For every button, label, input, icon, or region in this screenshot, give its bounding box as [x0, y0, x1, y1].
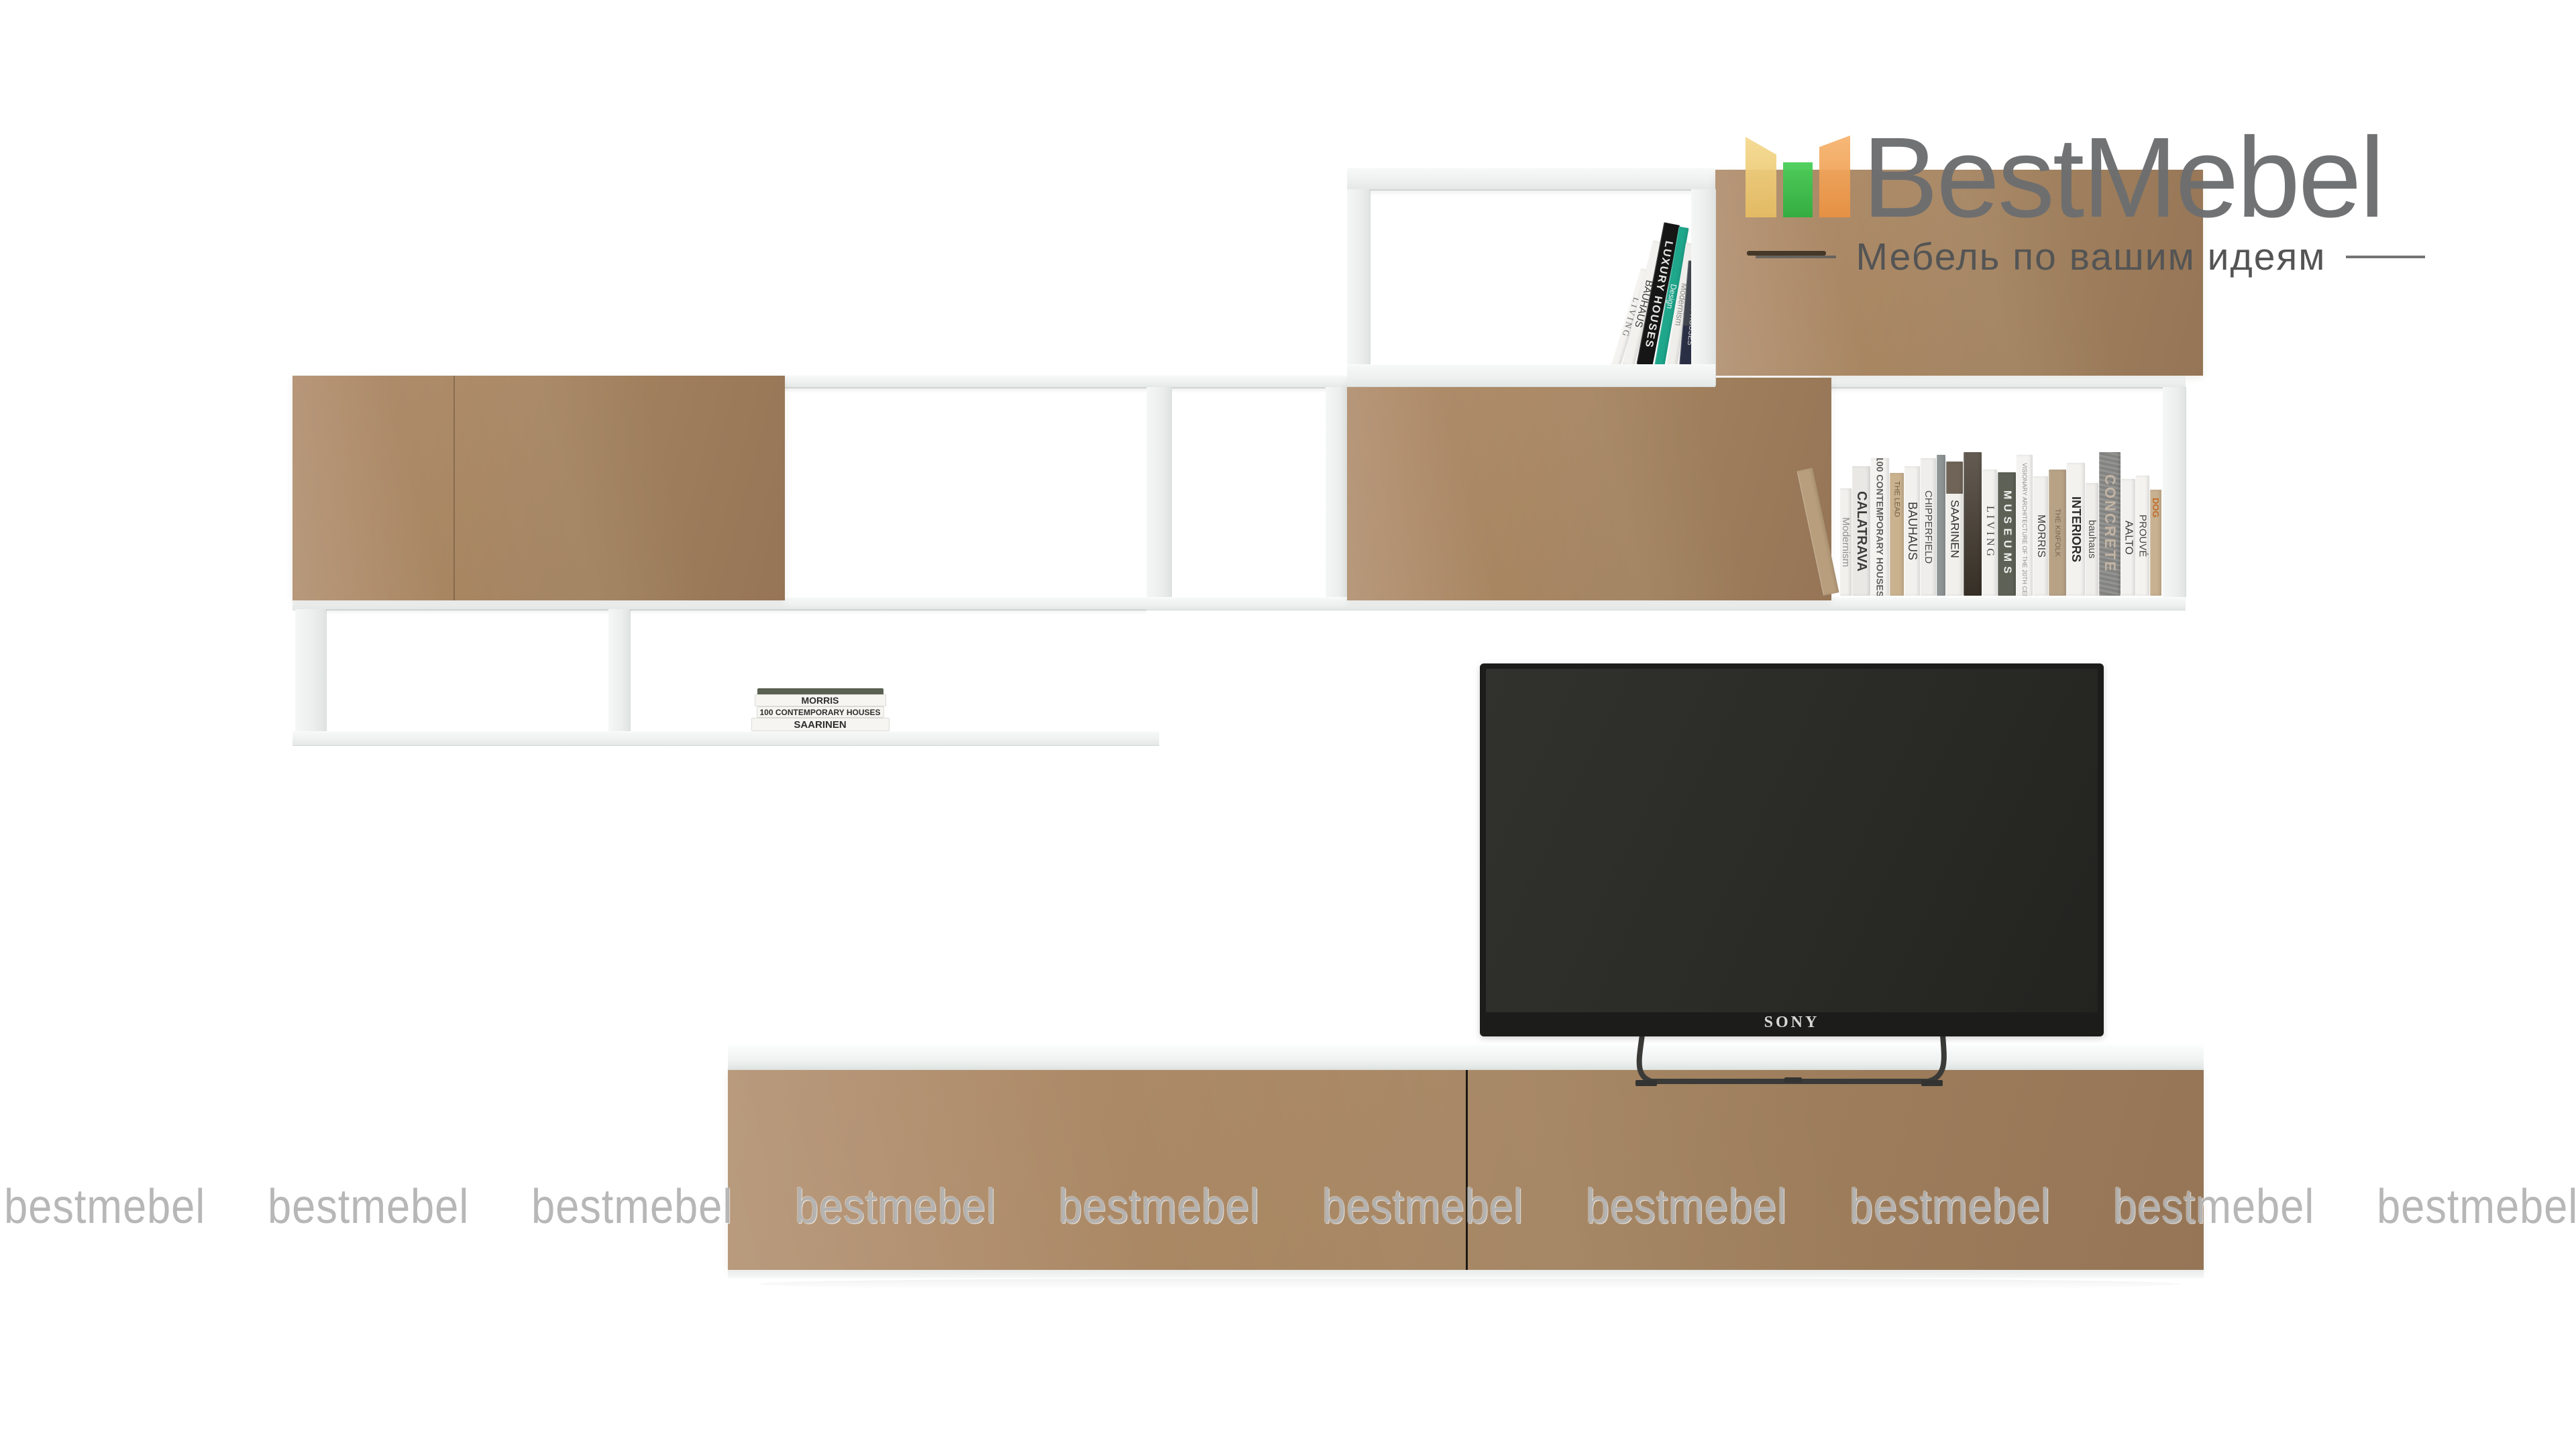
watermark-text: bestmebel: [1586, 1179, 1787, 1234]
book-title: AALTO: [2123, 521, 2135, 555]
tv-stand-bottom-edge: [728, 1270, 2204, 1278]
gloss-sheen: [292, 376, 785, 600]
top-box-right-wall: [1691, 189, 1716, 386]
book-title: THE KINFOLK: [2053, 508, 2061, 557]
tv-stand: [728, 1044, 2204, 1278]
book-title: MORRIS: [2035, 515, 2047, 557]
brand-tagline: Мебель по вашим идеям: [1856, 235, 2326, 279]
tagline-dash-left: [1756, 256, 1836, 258]
center-brown-cabinet: [1347, 378, 1831, 600]
mid-unit-right-wall: [1326, 387, 1349, 597]
book-spine: CONCRETE: [2099, 452, 2121, 596]
middle-shelf-books: ModernismCALATRAVA100 CONTEMPORARY HOUSE…: [1823, 451, 2167, 596]
right-shelf-top-bar: [1819, 375, 2186, 388]
book-spine: DOG: [2150, 490, 2161, 596]
lower-shelf-left-wall: [295, 609, 327, 731]
mid-unit-inner-shadow-1: [785, 387, 1146, 393]
book-title: 100 CONTEMPORARY HOUSES: [759, 708, 880, 717]
stacked-book: 100 CONTEMPORARY HOUSES: [757, 706, 884, 718]
book-title: CONCRETE: [2101, 474, 2118, 573]
top-box-left-wall: [1347, 189, 1371, 386]
book-title: MUSEUMS: [2001, 490, 2013, 578]
book-spine: AALTO: [2121, 479, 2135, 596]
book-spine: MUSEUMS: [1998, 472, 2016, 596]
right-shelf-right-wall: [2163, 387, 2186, 597]
mid-unit-inner-shadow-2: [1171, 387, 1326, 393]
tv: SONY: [1480, 663, 2104, 1036]
top-box-bottom-bar: [1347, 364, 1715, 387]
book-title: LIVING: [1984, 506, 1996, 559]
gloss-sheen: [1347, 378, 1831, 600]
book-title: VISIONARY ARCHITECTURE OF THE 20TH CENTU…: [2021, 463, 2028, 596]
book-spine: THE LEAD: [1890, 473, 1904, 596]
book-spine: BAUHAUS: [1904, 466, 1920, 596]
watermark-text: bestmebel: [4, 1179, 205, 1234]
book-spine: 100 CONTEMPORARY HOUSES: [1871, 458, 1889, 596]
tv-stand-seam: [1466, 1070, 1468, 1270]
lower-shelf-inner-shadow-1: [326, 609, 608, 614]
book-title: INTERIORS: [2069, 496, 2083, 562]
left-brown-cabinet: [292, 376, 785, 600]
watermark-text: bestmebel: [795, 1179, 996, 1234]
watermark-text: bestmebel: [1322, 1179, 1523, 1234]
lower-shelf-bottom: [292, 731, 1159, 746]
stacked-book-cover: [757, 688, 883, 694]
book-title: CALATRAVA: [1854, 491, 1869, 572]
book-title: bauhaus: [2086, 520, 2098, 559]
book-title: DOG: [2151, 498, 2161, 518]
tagline-dash-right: [2346, 256, 2425, 258]
book-title: 100 CONTEMPORARY HOUSES: [1875, 458, 1886, 596]
stacked-book: MORRIS: [755, 694, 886, 706]
tv-brand-label: SONY: [1480, 1014, 2104, 1032]
book-spine: SAARINEN: [1946, 462, 1963, 596]
book-title: SAARINEN: [1948, 500, 1962, 558]
mid-unit-top-bar: [785, 375, 1348, 388]
lower-shelf-divider: [608, 609, 631, 731]
mid-unit-divider: [1146, 387, 1172, 597]
book-spine: CHIPPERFIELD: [1921, 458, 1936, 596]
book-spine: [1937, 455, 1945, 596]
book-title: PROUVÉ: [2137, 515, 2149, 557]
book-spine: Modernism: [1840, 488, 1851, 596]
book-title: Modernism: [1840, 517, 1851, 567]
logo-bar-middle-icon: [1783, 162, 1813, 217]
book-title: MORRIS: [802, 695, 839, 706]
brand-name: BestMebel: [1862, 121, 2383, 235]
book-spine: MORRIS: [2033, 476, 2048, 596]
tv-wire-stand: [1609, 1034, 1976, 1098]
book-spine: CALATRAVA: [1852, 466, 1870, 596]
logo-bar-left-icon: [1746, 137, 1776, 217]
book-spine: THE KINFOLK: [2049, 470, 2066, 596]
brand-tagline-row: Мебель по вашим идеям: [1741, 235, 2439, 279]
logo-bar-right-icon: [1819, 136, 1850, 217]
book-title: BAUHAUS: [1905, 502, 1919, 560]
watermark-text: bestmebel: [268, 1179, 469, 1234]
top-box-inner-shadow: [1370, 189, 1691, 196]
brand-logo: BestMebel Мебель по вашим идеям: [1731, 125, 2546, 309]
stacked-book: SAARINEN: [751, 718, 890, 731]
door-seam: [453, 376, 455, 600]
book-spine: bauhaus: [2086, 483, 2098, 596]
watermark-text: bestmebel: [531, 1179, 733, 1234]
stacked-books: MORRIS100 CONTEMPORARY HOUSESSAARINEN: [738, 688, 902, 731]
book-spine: PROUVÉ: [2136, 476, 2149, 596]
product-image-canvas: { "brand": { "name": "BestMebel", "tagli…: [0, 0, 2576, 1449]
book-title: CHIPPERFIELD: [1923, 490, 1934, 563]
book-spine: VISIONARY ARCHITECTURE OF THE 20TH CENTU…: [2017, 455, 2033, 596]
book-spine: INTERIORS: [2067, 463, 2085, 596]
book-title: SAARINEN: [794, 719, 846, 731]
book-spine: LIVING: [1982, 470, 1997, 596]
floor-shadow: [758, 1279, 2180, 1289]
top-box-top-bar: [1347, 168, 1715, 191]
watermark-text: bestmebel: [1849, 1179, 2051, 1234]
book-spine: [1964, 452, 1982, 596]
tv-stand-top: [728, 1044, 2204, 1071]
right-shelf-inner-shadow: [1831, 387, 2163, 393]
watermark-text: bestmebel: [2377, 1179, 2576, 1234]
book-title: THE LEAD: [1893, 481, 1901, 517]
watermark-text: bestmebel: [1059, 1179, 1260, 1234]
tv-stand-front: [728, 1070, 2204, 1270]
lower-shelf-inner-shadow-2: [630, 609, 1146, 614]
tv-screen: [1486, 669, 2098, 1012]
watermark-text: bestmebel: [2113, 1179, 2314, 1234]
